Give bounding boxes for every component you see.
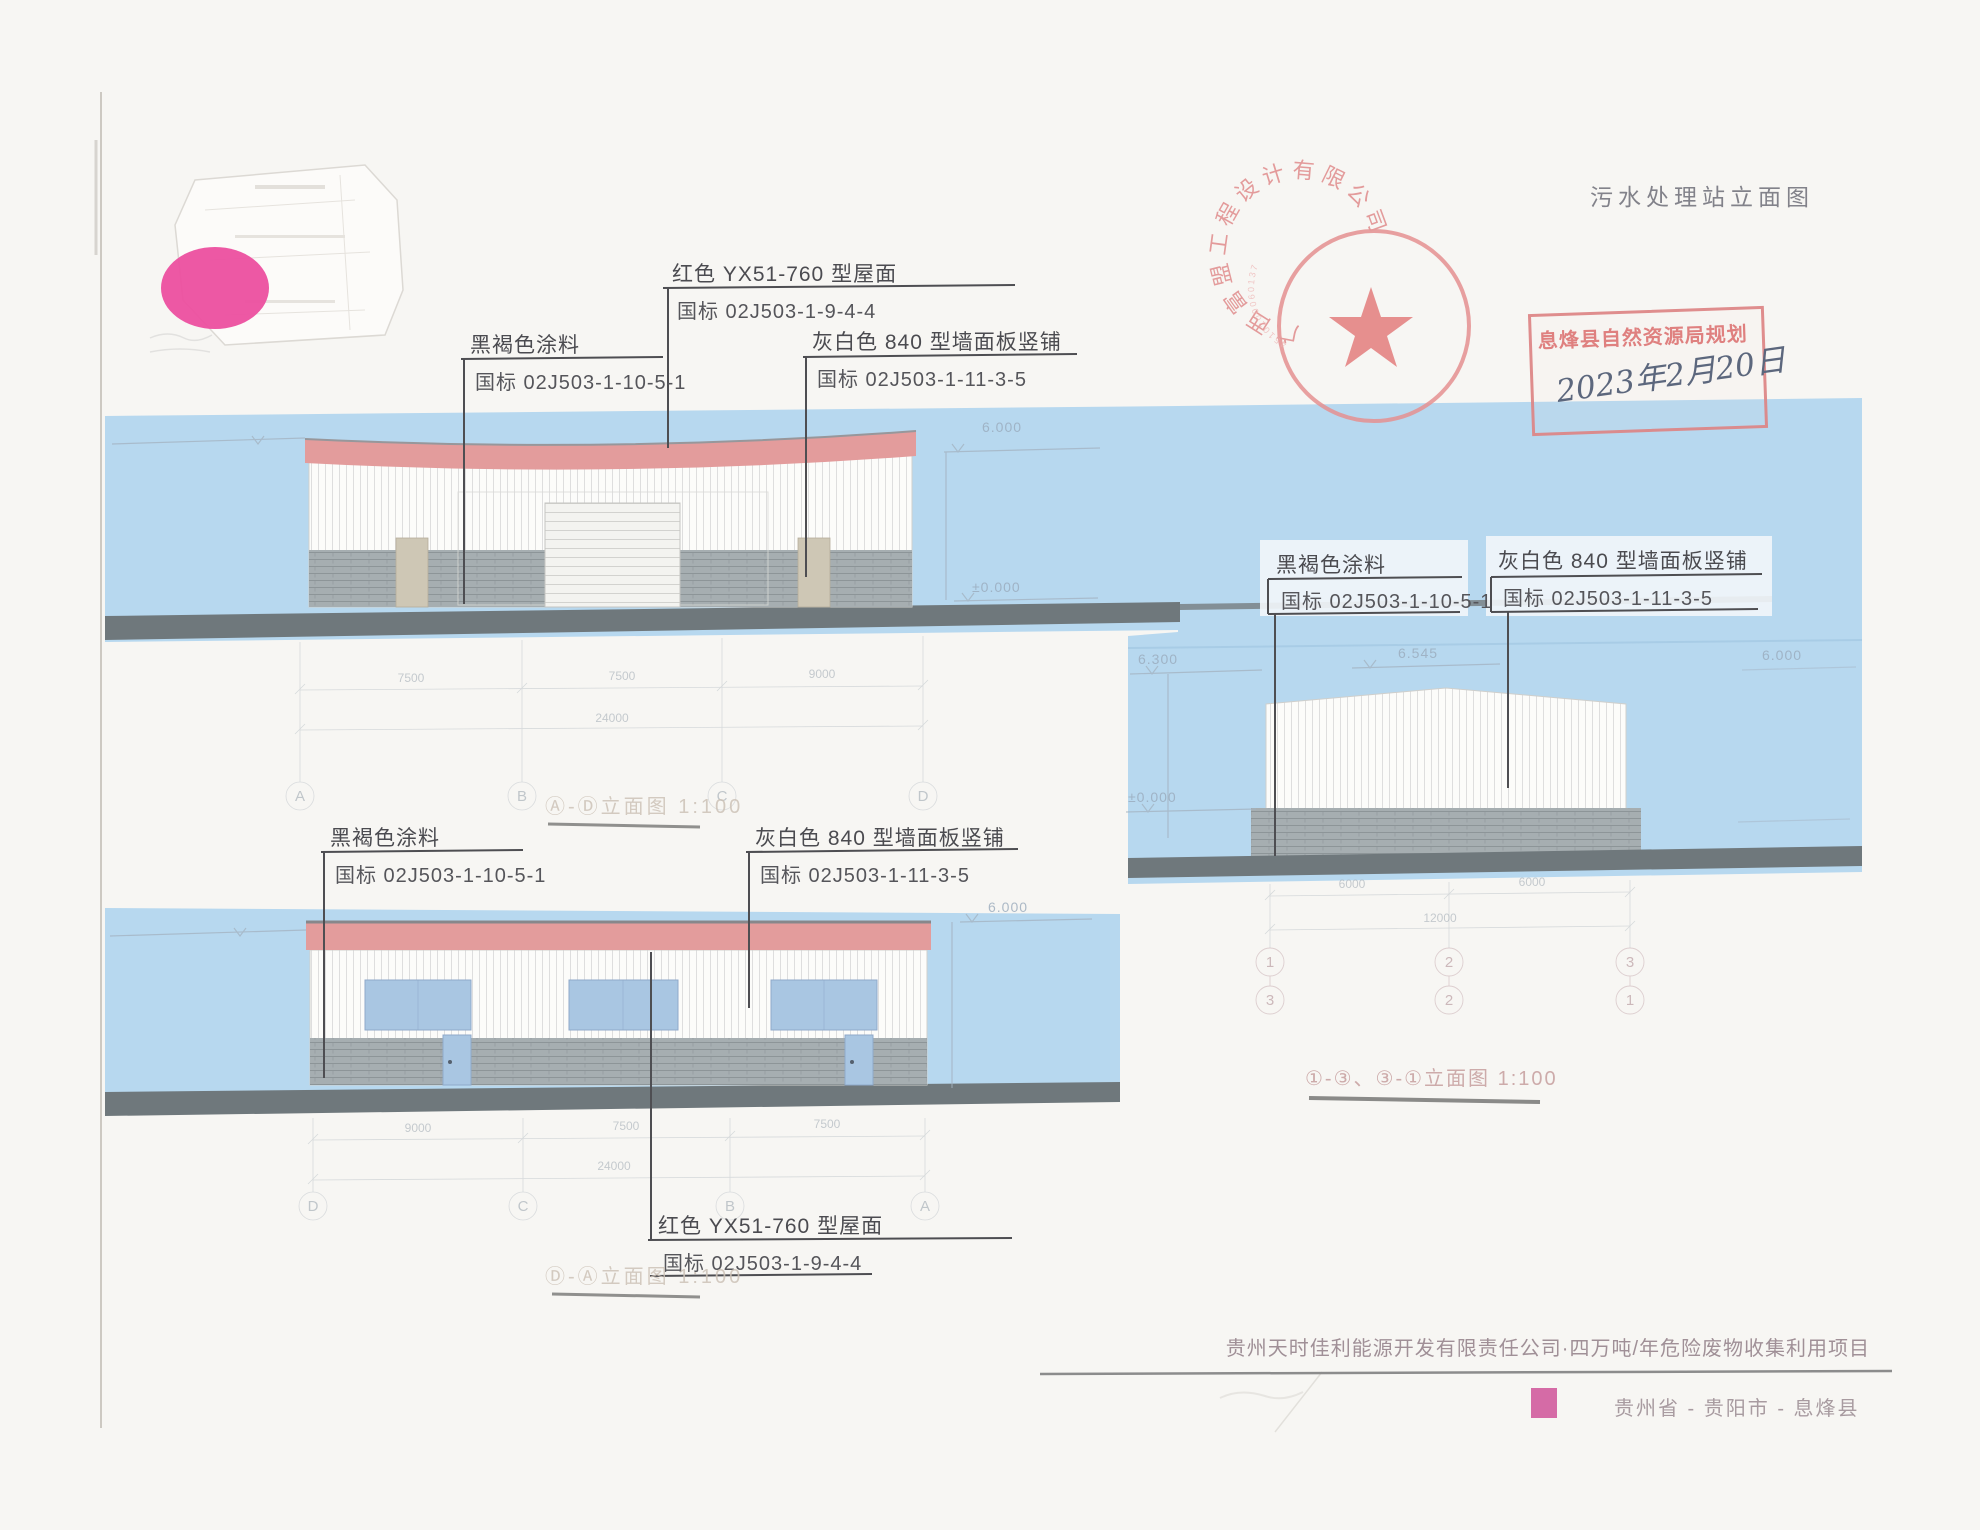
grid-bubble-label: 1 — [1626, 992, 1634, 1009]
grid-bubble-label: B — [517, 788, 527, 805]
caption-underline — [548, 824, 700, 827]
level-left-top-label: 6.300 — [1138, 651, 1178, 667]
seal-star-icon — [1329, 287, 1413, 367]
level-top-label: 6.000 — [988, 899, 1028, 915]
dim-label: 7500 — [609, 669, 636, 683]
callout-paint-material: 黑褐色涂料 — [330, 822, 440, 852]
caption-elevation-13: ①-③、③-①立面图 1:100 — [1305, 1062, 1558, 1091]
dim-total-label: 24000 — [597, 1159, 631, 1173]
grid-bubble-label: A — [295, 788, 305, 805]
level-ground-label: ±0.000 — [1128, 789, 1177, 805]
callout-paint-standard: 国标 02J503-1-10-5-1 — [475, 366, 686, 395]
dim-label: 6000 — [1339, 877, 1366, 891]
callout-paint-material: 黑褐色涂料 — [470, 329, 580, 359]
dim-total-label: 12000 — [1423, 911, 1457, 925]
grid-bubble-label: 2 — [1445, 992, 1453, 1009]
callout-roof-standard: 国标 02J503-1-9-4-4 — [677, 295, 876, 324]
callout-panel-material: 灰白色 840 型墙面板竖铺 — [1498, 545, 1748, 575]
callout-panel-material: 灰白色 840 型墙面板竖铺 — [755, 822, 1005, 852]
grid-bubble-label: 2 — [1445, 954, 1453, 971]
grid-bubble-label: A — [920, 1198, 930, 1215]
sheet-title: 污水处理站立面图 — [1590, 178, 1814, 212]
level-peak-label: 6.545 — [1398, 645, 1438, 661]
brick-wainscot — [310, 1038, 927, 1085]
grid-bubble-label: C — [518, 1198, 529, 1215]
callout-panel-standard: 国标 02J503-1-11-3-5 — [817, 363, 1027, 392]
site-plan-thumbnail — [135, 140, 435, 375]
windows — [365, 980, 877, 1030]
callout-paint-material: 黑褐色涂料 — [1276, 549, 1386, 579]
grid-bubble-label: D — [308, 1198, 319, 1215]
pilaster-column — [798, 538, 830, 607]
legend-pink-square — [1531, 1388, 1557, 1418]
callout-roof-material: 红色 YX51-760 型屋面 — [672, 258, 897, 288]
project-title: 贵州天时佳利能源开发有限责任公司·四万吨/年危险废物收集利用项目 — [1000, 1332, 1870, 1361]
level-top-label: 6.000 — [982, 419, 1022, 435]
grid-bubble-label: 3 — [1626, 954, 1634, 971]
project-location: 贵州省 - 贵阳市 - 息烽县 — [1614, 1392, 1860, 1421]
roof-band — [306, 922, 931, 950]
dim-label: 6000 — [1519, 875, 1546, 889]
level-right-top-label: 6.000 — [1762, 647, 1802, 663]
pilaster-column — [396, 538, 428, 607]
callout-paint-standard: 国标 02J503-1-10-5-1 — [335, 859, 546, 888]
grid-bubble-label: D — [918, 788, 929, 805]
dim-total-label: 24000 — [595, 711, 629, 725]
footer-rule — [1040, 1371, 1892, 1374]
roller-door — [545, 503, 680, 607]
callout-panel-material: 灰白色 840 型墙面板竖铺 — [812, 326, 1062, 356]
callout-roof-material: 红色 YX51-760 型屋面 — [658, 1210, 883, 1240]
caption-elevation-ad: Ⓐ-Ⓓ立面图 1:100 — [545, 790, 743, 819]
brick-wainscot — [1251, 808, 1641, 858]
dim-label: 7500 — [814, 1117, 841, 1131]
grid-bubble-label: 3 — [1266, 992, 1274, 1009]
dim-label: 9000 — [809, 667, 836, 681]
callout-paint-standard: 国标 02J503-1-10-5-1 — [1281, 585, 1492, 614]
callout-panel-standard: 国标 02J503-1-11-3-5 — [1503, 582, 1713, 611]
location-highlight-ellipse — [161, 247, 269, 329]
company-seal: 广西富盟工程设计有限公司 4510200060137 — [1205, 157, 1469, 421]
caption-elevation-da: Ⓓ-Ⓐ立面图 1:100 — [545, 1260, 743, 1289]
callout-panel-standard: 国标 02J503-1-11-3-5 — [760, 859, 970, 888]
dim-label: 7500 — [398, 671, 425, 685]
level-ground-label: ±0.000 — [972, 579, 1021, 595]
wall-panels — [1266, 688, 1626, 816]
scanned-drawing-sheet: 6.000 ±0.000 7500 7500 9000 24000 A B C … — [0, 0, 1980, 1530]
approval-stamp: 息烽县自然资源局规划 2023年2月20日 — [1528, 306, 1768, 436]
dim-label: 7500 — [613, 1119, 640, 1133]
caption-underline — [552, 1294, 700, 1297]
caption-underline — [1309, 1098, 1540, 1102]
dim-label: 9000 — [405, 1121, 432, 1135]
grid-bubble-label: 1 — [1266, 954, 1274, 971]
